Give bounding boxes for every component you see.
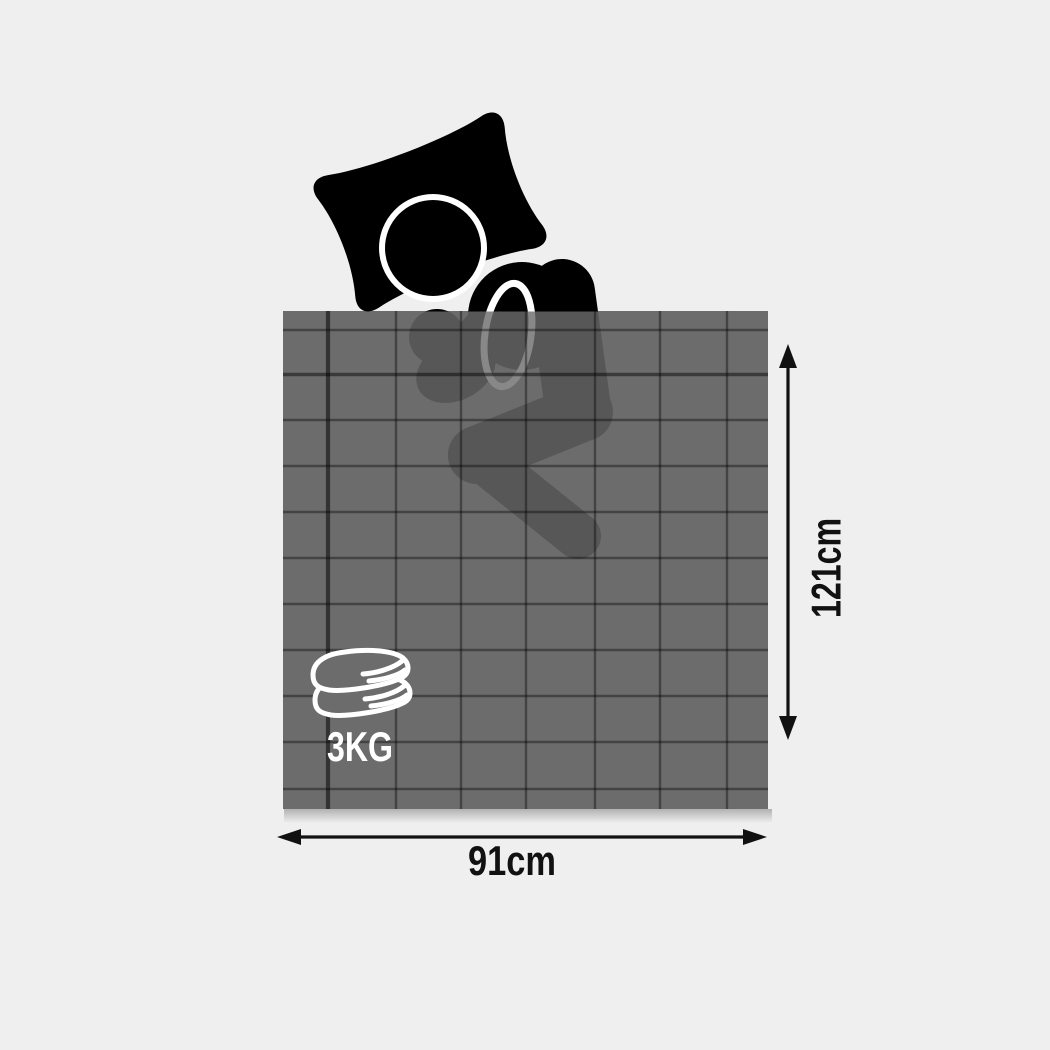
folded-blankets-icon <box>313 650 410 715</box>
blanket-shadow <box>284 809 772 823</box>
weight-label: 3KG <box>327 723 393 770</box>
weighted-blanket-dimensions-illustration: 3KG 121cm 91cm <box>0 0 1050 1050</box>
height-label: 121cm <box>803 518 850 618</box>
width-label: 91cm <box>468 837 556 884</box>
product-dimension-diagram: 3KG 121cm 91cm <box>0 0 1050 1050</box>
